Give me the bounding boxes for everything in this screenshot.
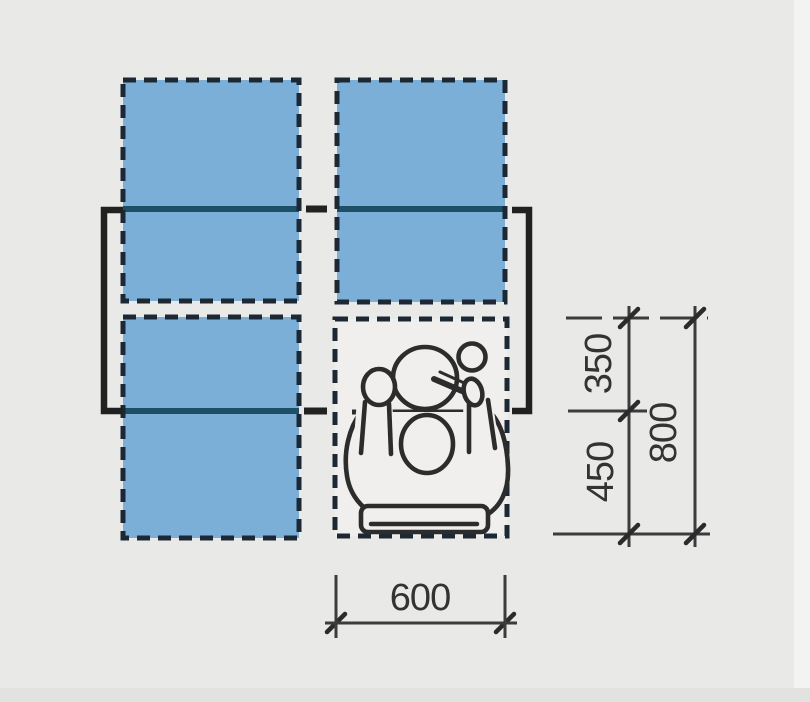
plate: [393, 347, 457, 409]
seat-zone-top-right: [337, 80, 505, 302]
dim-label-seat-width: 600: [390, 577, 450, 619]
diagram-canvas: 350 450 800 600: [0, 0, 810, 702]
person-head: [401, 415, 453, 473]
scan-edge-bottom: [0, 688, 810, 702]
seating-clearance-diagram: 350 450 800 600: [0, 0, 810, 702]
dim-label-setting-depth: 350: [578, 334, 620, 394]
chair-back: [361, 506, 488, 532]
seat-zone-top-left: [123, 80, 299, 301]
dim-label-chair-depth: 450: [580, 442, 622, 502]
scan-edge-right: [794, 0, 810, 702]
bowl-left-hand: [363, 369, 395, 405]
cup: [459, 344, 486, 371]
dim-label-total-depth: 800: [643, 403, 685, 463]
seat-zone-bottom-left: [123, 317, 299, 538]
